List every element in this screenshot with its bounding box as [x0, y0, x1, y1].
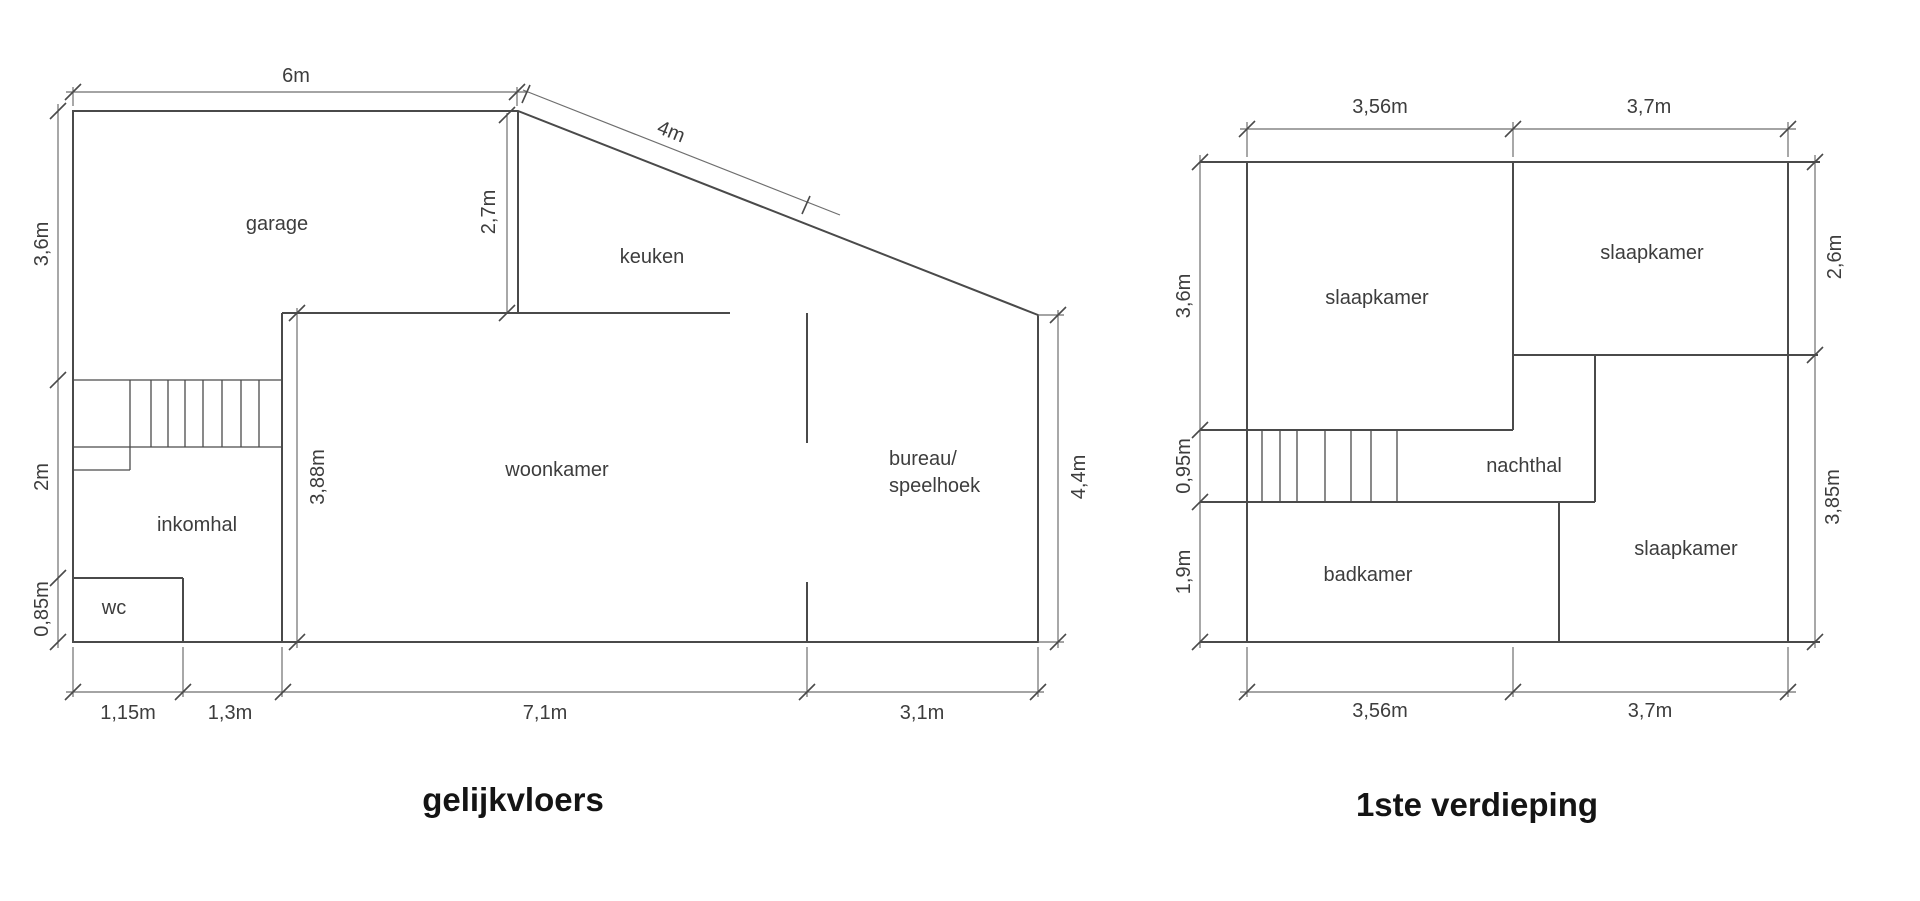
room-label-keuken: keuken [620, 247, 685, 267]
tick-marks [1192, 121, 1823, 700]
first-floor-extension-lines [1247, 122, 1788, 697]
dim-label-bottom-bureau: 3,1m [900, 703, 944, 723]
dim-label-ff-right-upper: 2,6m [1825, 235, 1845, 279]
dim-label-woonkamer-height: 3,88m [308, 449, 328, 505]
room-label-bureau-line2: speelhoek [889, 473, 980, 500]
dim-label-ff-right-lower: 3,85m [1823, 469, 1843, 525]
room-label-woonkamer: woonkamer [505, 460, 608, 480]
first-floor-walls [1200, 162, 1820, 642]
first-floor-title: 1ste verdieping [1356, 786, 1598, 824]
dim-label-left-upper: 3,6m [32, 222, 52, 266]
first-floor-dim-lines [1200, 129, 1815, 692]
room-label-nachthal: nachthal [1486, 456, 1562, 476]
dim-label-right-height: 4,4m [1069, 455, 1089, 499]
dim-label-left-middle: 2m [32, 463, 52, 491]
stairs-icon [73, 380, 282, 470]
first-floor-dimension-lines [1200, 122, 1815, 697]
dim-label-bottom-wc: 1,15m [100, 703, 156, 723]
stairs-icon [1262, 430, 1397, 502]
room-label-slaapkamer-top-right: slaapkamer [1600, 243, 1703, 263]
dim-label-ff-left-middle: 0,95m [1174, 438, 1194, 494]
ground-floor-dim-lines [58, 90, 1058, 692]
dim-label-top-width: 6m [282, 66, 310, 86]
room-label-slaapkamer-top-left: slaapkamer [1325, 288, 1428, 308]
room-label-wc: wc [102, 598, 126, 618]
dim-label-ff-left-upper: 3,6m [1174, 274, 1194, 318]
first-floor-stairs [1262, 430, 1397, 502]
dim-label-bottom-hal: 1,3m [208, 703, 252, 723]
first-floor-dimension-ticks [1192, 121, 1823, 700]
room-label-slaapkamer-bottom-right: slaapkamer [1634, 539, 1737, 559]
ground-floor-inner-walls [73, 111, 807, 642]
dim-label-ff-top-left: 3,56m [1352, 97, 1408, 117]
dim-label-ff-bottom-left: 3,56m [1352, 701, 1408, 721]
room-label-inkomhal: inkomhal [157, 515, 237, 535]
ground-floor-stairs [73, 380, 282, 470]
floorplan-page: 6m 4m 3,6m 2m 0,85m 2,7m 3,88m 4,4m 1,15… [0, 0, 1920, 901]
dim-label-left-lower: 0,85m [32, 581, 52, 637]
room-label-bureau-speelhoek: bureau/ speelhoek [889, 446, 980, 500]
room-label-garage: garage [246, 214, 308, 234]
ground-floor-dimension-lines [58, 87, 1064, 697]
ground-floor-walls [73, 111, 1038, 642]
dim-label-ff-left-lower: 1,9m [1174, 550, 1194, 594]
dim-label-bottom-woonkamer: 7,1m [523, 703, 567, 723]
first-floor-outer-and-inner-walls [1200, 162, 1820, 642]
ground-floor-outer-wall [73, 111, 1038, 642]
dim-label-keuken-height: 2,7m [479, 190, 499, 234]
ground-floor-title: gelijkvloers [422, 781, 604, 819]
room-label-badkamer: badkamer [1324, 565, 1413, 585]
dim-label-ff-top-right: 3,7m [1627, 97, 1671, 117]
dim-label-ff-bottom-right: 3,7m [1628, 701, 1672, 721]
room-label-bureau-line1: bureau/ [889, 446, 980, 473]
